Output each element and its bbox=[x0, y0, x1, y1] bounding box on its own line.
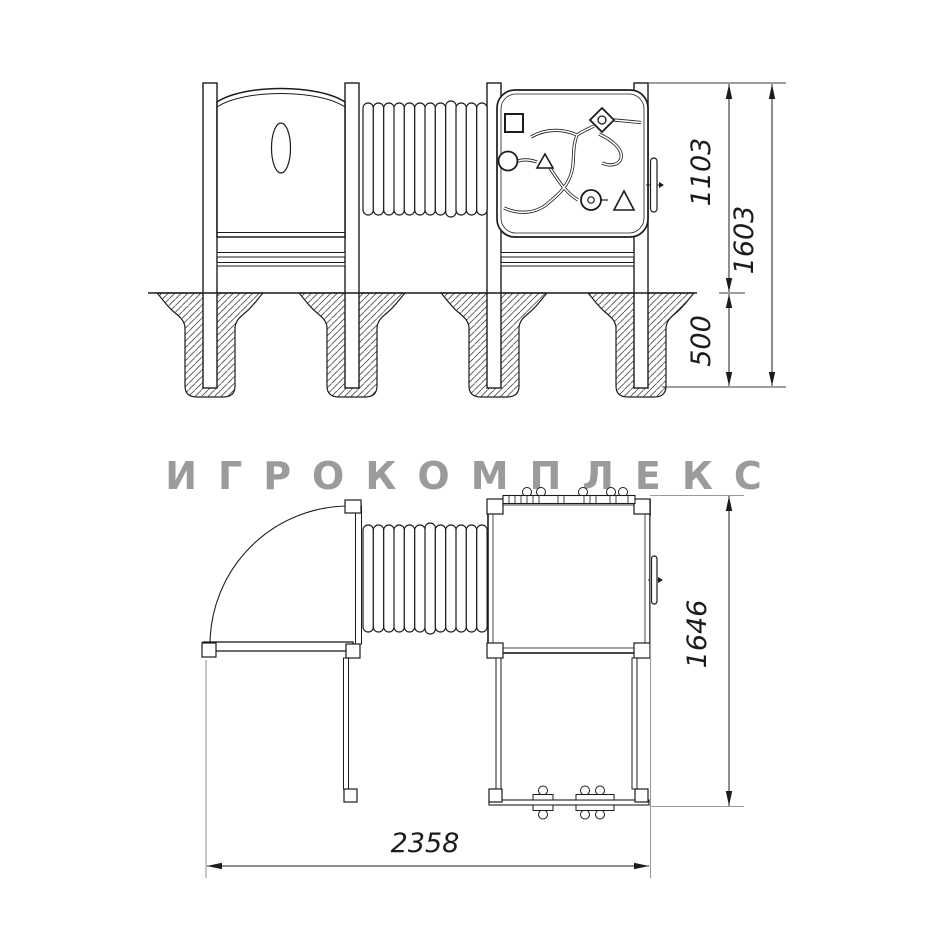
tunnel-plan bbox=[363, 523, 487, 634]
drawing-sheet: ИГРОКОМПЛЕКС bbox=[0, 0, 950, 950]
post bbox=[203, 83, 217, 388]
maze-square bbox=[505, 114, 523, 132]
dim-front-total-height: 1603 bbox=[729, 206, 760, 275]
plan-post bbox=[634, 643, 650, 658]
maze-panel bbox=[497, 90, 648, 237]
foundation-footings bbox=[157, 293, 694, 397]
dim-plan-depth: 1646 bbox=[682, 600, 713, 669]
plan-right-box bbox=[487, 488, 663, 659]
plan-post bbox=[487, 499, 503, 514]
dim-front-upper-height: 1103 bbox=[686, 138, 717, 207]
plan-post bbox=[487, 643, 503, 658]
post bbox=[345, 83, 359, 388]
plan-post bbox=[202, 643, 216, 657]
plan-curved-panel bbox=[210, 506, 349, 645]
dim-front-foundation-depth: 500 bbox=[686, 315, 717, 367]
plan-post bbox=[489, 789, 502, 802]
tunnel-front bbox=[363, 101, 487, 217]
left-panel bbox=[217, 89, 345, 238]
technical-drawing: ИГРОКОМПЛЕКС bbox=[0, 0, 950, 950]
front-rails bbox=[217, 253, 634, 267]
maze-circle-left bbox=[499, 152, 518, 171]
front-elevation-view bbox=[148, 83, 697, 397]
plan-lower-section bbox=[489, 658, 649, 819]
plan-post bbox=[634, 499, 650, 514]
plan-left-section bbox=[202, 500, 362, 802]
plan-post bbox=[345, 500, 361, 513]
dim-plan-width: 2358 bbox=[391, 828, 460, 859]
plan-post bbox=[635, 789, 648, 802]
watermark-text: ИГРОКОМПЛЕКС bbox=[165, 454, 783, 498]
plan-post bbox=[346, 644, 360, 658]
front-dimensions: 1103 1603 500 bbox=[648, 83, 786, 387]
plan-post bbox=[344, 789, 357, 802]
plan-view bbox=[202, 488, 663, 820]
